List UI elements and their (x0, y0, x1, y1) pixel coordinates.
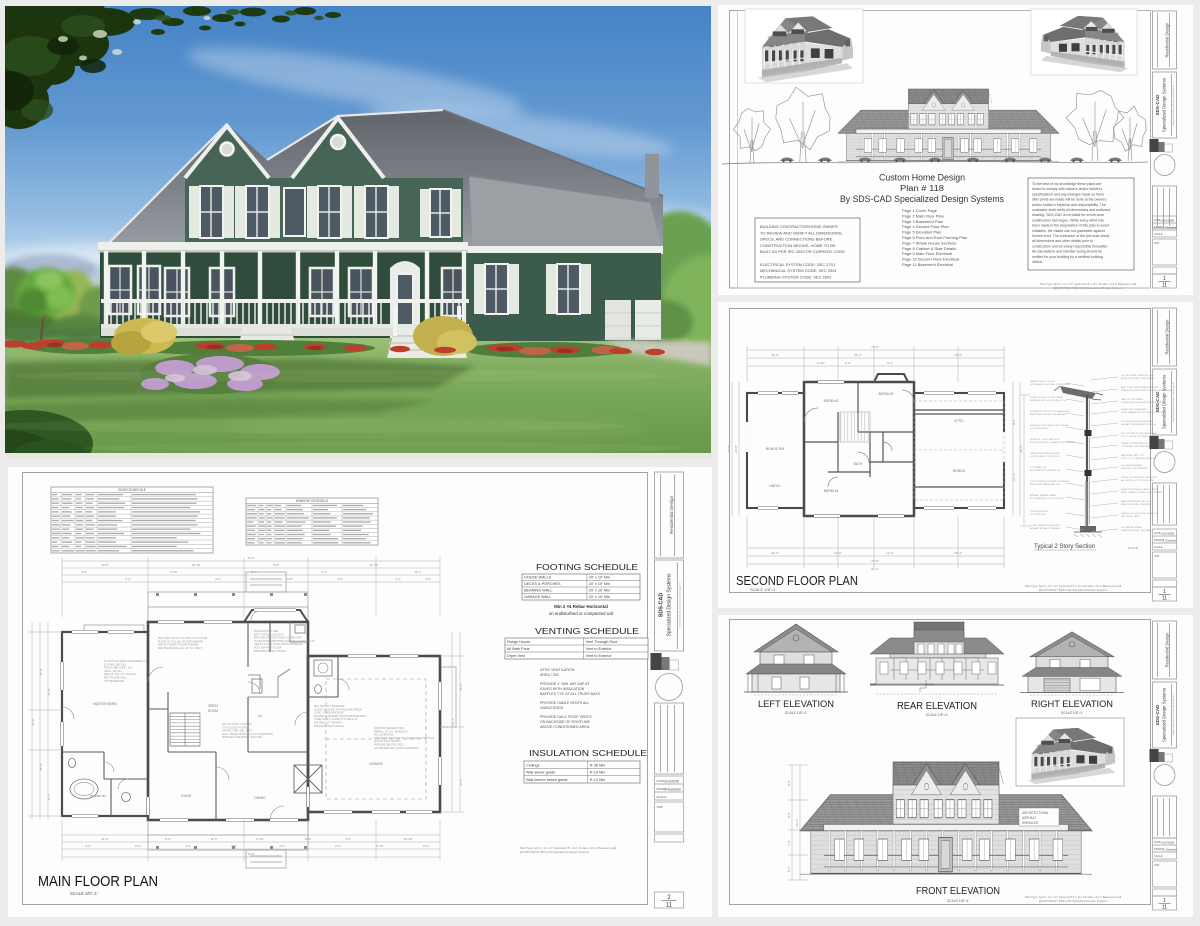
svg-text:ARCHITECTURAL: ARCHITECTURAL (1022, 811, 1049, 815)
svg-text:FOOTING SCHEDULE: FOOTING SCHEDULE (536, 562, 638, 572)
svg-text:12'-6": 12'-6" (304, 837, 311, 841)
svg-text:@COPYRIGHT SDS-CAD Specialized: @COPYRIGHT SDS-CAD Specialized Design Sy… (1039, 588, 1108, 592)
svg-text:RIDGE STUD WALL PROVIDE: RIDGE STUD WALL PROVIDE (1121, 503, 1150, 506)
svg-text:6/14/2008: 6/14/2008 (665, 780, 679, 784)
svg-text:3'-6": 3'-6" (81, 570, 87, 574)
svg-text:11: 11 (1162, 596, 1167, 602)
svg-text:GARAGE WALL: GARAGE WALL (524, 595, 552, 599)
svg-text:11: 11 (666, 903, 673, 909)
svg-text:20'-10": 20'-10" (404, 837, 413, 841)
svg-text:and/or builder's expense and r: and/or builder's expense and responsibil… (1032, 203, 1106, 207)
svg-text:Typical 2 Story Section: Typical 2 Story Section (1034, 544, 1095, 550)
svg-text:SPECS, AND CONNECTIONS BEFORE: SPECS, AND CONNECTIONS BEFORE (760, 237, 833, 242)
svg-text:29'-8": 29'-8" (734, 445, 738, 453)
svg-text:FOOTING INSUL. STUD STUD: FOOTING INSUL. STUD STUD (1030, 456, 1060, 458)
svg-text:PROVIDE 1" MIN. AIR GAP AT: PROVIDE 1" MIN. AIR GAP AT (540, 682, 590, 686)
svg-text:20' x 10' Min: 20' x 10' Min (589, 582, 610, 586)
svg-text:12'-6": 12'-6" (210, 837, 217, 841)
svg-text:They Provide, We are dreams an: They Provide, We are dreams and designs … (1173, 694, 1175, 735)
svg-text:SCALE: SCALE (1154, 545, 1163, 549)
svg-text:GABLE ENDS: GABLE ENDS (540, 706, 564, 710)
svg-text:1/2" DBL PLATE TRUSS SILL R-19: 1/2" DBL PLATE TRUSS SILL R-19 (1121, 374, 1154, 377)
svg-text:@COPYRIGHT SDS-CAD Specialized: @COPYRIGHT SDS-CAD Specialized Design Sy… (1054, 286, 1123, 290)
svg-text:SCALE 1/8"=1': SCALE 1/8"=1' (785, 711, 808, 715)
svg-text:SHEATHING INSUL. MIN. WALL: SHEATHING INSUL. MIN. WALL (1121, 529, 1152, 532)
svg-text:mistakes, the maker can not gu: mistakes, the maker can not guarantee ag… (1032, 229, 1105, 233)
svg-text:BDRM #2: BDRM #2 (824, 399, 839, 403)
svg-text:INSULATION SCHEDULE: INSULATION SCHEDULE (529, 748, 647, 758)
svg-text:Range Hoods: Range Hoods (507, 640, 530, 644)
svg-text:LEFT ELEVATION: LEFT ELEVATION (758, 699, 834, 710)
svg-text:RIDGE 5/8" CONC. VENT R-19: RIDGE 5/8" CONC. VENT R-19 (1030, 439, 1060, 441)
svg-text:JOB: JOB (1154, 863, 1159, 867)
svg-text:1'-0": 1'-0" (787, 840, 791, 846)
svg-text:DECKS & PORCHES: DECKS & PORCHES (524, 582, 561, 586)
svg-text:2'-0": 2'-0" (335, 844, 341, 848)
svg-text:R-19 GYPSUM 1/2" ANCHOR BOARD: R-19 GYPSUM 1/2" ANCHOR BOARD (1121, 432, 1157, 435)
svg-text:1: 1 (1163, 589, 1166, 595)
svg-text:6/14/2008: 6/14/2008 (1162, 841, 1175, 845)
svg-text:ABOVE CONDITIONED AREA.: ABOVE CONDITIONED AREA. (540, 725, 590, 729)
svg-text:SCALE 1/8"=1': SCALE 1/8"=1' (947, 899, 970, 903)
svg-text:PLATE GYPSUM TYP. MIN. INSUL.: PLATE GYPSUM TYP. MIN. INSUL. (1030, 396, 1064, 399)
svg-text:ALL VENT 2x6 TYP. PROVIDE MIN.: ALL VENT 2x6 TYP. PROVIDE MIN. (1121, 479, 1155, 482)
svg-text:5'-6": 5'-6" (165, 837, 171, 841)
svg-text:DOOR SCHEDULE: DOOR SCHEDULE (118, 488, 146, 492)
svg-text:Page 2 Main Floor Plan: Page 2 Main Floor Plan (902, 213, 944, 218)
svg-text:TRUSS DBL INSUL.: TRUSS DBL INSUL. (1030, 511, 1049, 513)
svg-text:9'-7": 9'-7" (251, 570, 257, 574)
svg-text:PLUMBING SYSTEM CODE: SEC 29: PLUMBING SYSTEM CODE: SEC 2901 (760, 274, 832, 279)
svg-text:BEARING WALL: BEARING WALL (524, 589, 552, 593)
svg-text:SILL SIDING HEADER: SILL SIDING HEADER (1121, 464, 1143, 467)
svg-text:ASPHALT ASPHALT PLAN BATT: ASPHALT ASPHALT PLAN BATT (1030, 527, 1061, 530)
svg-text:11'-6": 11'-6" (101, 837, 108, 841)
svg-text:SCALE 1/8"=1': SCALE 1/8"=1' (70, 891, 98, 896)
svg-text:3'-0": 3'-0" (215, 577, 221, 581)
svg-text:RAFTER ALL BATT TYP.: RAFTER ALL BATT TYP. (1121, 454, 1144, 457)
svg-text:construction and be solely res: construction and be solely responsible t… (1032, 244, 1108, 248)
svg-text:AREA / 300: AREA / 300 (540, 673, 559, 677)
svg-text:8'-0": 8'-0" (787, 812, 791, 818)
svg-text:verified for your building by: verified for your building by a certifie… (1032, 255, 1103, 259)
svg-text:PROVIDE 3/4" FLOOR 2x10 HEADER: PROVIDE 3/4" FLOOR 2x10 HEADER ALL (1030, 410, 1071, 413)
svg-text:ASPHALT TRUSS VERIFY STUD 2x4: ASPHALT TRUSS VERIFY STUD 2x4 (1121, 423, 1157, 426)
svg-text:SECOND FLOOR PLAN: SECOND FLOOR PLAN (736, 573, 858, 588)
svg-text:1: 1 (1163, 276, 1166, 282)
svg-text:20' x 10' Min: 20' x 10' Min (589, 589, 610, 593)
svg-text:9'-4": 9'-4" (47, 794, 51, 800)
svg-text:ROOM: ROOM (208, 709, 218, 713)
svg-text:INSUL. GRADE GYPSUM FLOOR HEAD: INSUL. GRADE GYPSUM FLOOR HEADER (1121, 491, 1163, 494)
svg-text:VERIFY ANCHOR MIN. DBL ASPHALT: VERIFY ANCHOR MIN. DBL ASPHALT (1030, 413, 1067, 416)
svg-text:drawing. SDS-CAD is not liabl: drawing. SDS-CAD is not liable for error… (1032, 213, 1104, 217)
svg-text:Plan # 118: Plan # 118 (900, 184, 945, 193)
svg-text:20' x 10' Min: 20' x 10' Min (589, 595, 610, 599)
svg-text:Wall above grade: Wall above grade (526, 771, 555, 775)
svg-text:8'-0": 8'-0" (1012, 419, 1016, 425)
svg-text:ATTIC VENTILATION: ATTIC VENTILATION (540, 668, 575, 672)
svg-text:MASTER BDRM: MASTER BDRM (93, 702, 117, 706)
svg-text:on undisturbed or compacted so: on undisturbed or compacted soil (549, 611, 614, 616)
svg-text:human error. The contractor o: human error. The contractor of the job m… (1032, 234, 1110, 238)
svg-text:SEE BOARD WALL ALL 16" O.C. BO: SEE BOARD WALL ALL 16" O.C. BOLT (158, 647, 203, 650)
svg-text:To the best of my knowledge th: To the best of my knowledge these plans … (1032, 182, 1101, 186)
svg-text:R-38 Min: R-38 Min (590, 763, 605, 767)
svg-text:2: 2 (667, 895, 671, 901)
svg-text:CONSTRUCTION BEGINS. HOME TO B: CONSTRUCTION BEGINS. HOME TO BE (760, 243, 836, 248)
svg-text:GREAT: GREAT (208, 704, 219, 708)
svg-text:BATH: BATH (854, 462, 863, 466)
svg-text:SHINGLES 5/8" 2x6 GYPSUM 5/8": SHINGLES 5/8" 2x6 GYPSUM 5/8" 2x6 (1030, 400, 1067, 402)
svg-text:Residential Design: Residential Design (1165, 22, 1170, 58)
svg-text:Page 3 Basement Plan: Page 3 Basement Plan (902, 219, 943, 224)
svg-text:BONUS: BONUS (953, 469, 966, 473)
svg-text:DATE: DATE (1154, 840, 1161, 844)
svg-text:Vent to Exterior: Vent to Exterior (586, 654, 613, 658)
svg-text:26'-4": 26'-4" (954, 551, 962, 555)
svg-text:JOB: JOB (657, 805, 663, 809)
svg-text:WINDOW SCHEDULE: WINDOW SCHEDULE (296, 499, 328, 503)
svg-text:5'-8": 5'-8" (287, 577, 293, 581)
svg-text:ASPHALT: ASPHALT (1022, 816, 1036, 820)
svg-text:DATE: DATE (657, 779, 665, 783)
svg-text:ASPHALT HEADER GRADE: ASPHALT HEADER GRADE (1030, 494, 1057, 497)
svg-text:TYP. VENT BOLT: TYP. VENT BOLT (1030, 514, 1047, 516)
svg-text:GARAGE: GARAGE (369, 762, 383, 766)
svg-text:RIDGE VENT RAFTER ALL DBL: RIDGE VENT RAFTER ALL DBL (1030, 483, 1061, 486)
svg-text:DATE: DATE (1154, 218, 1161, 222)
svg-text:8'-0": 8'-0" (787, 866, 791, 872)
svg-text:R-19 BOARD ALL CONC. PROVIDE: R-19 BOARD ALL CONC. PROVIDE (1030, 497, 1064, 500)
svg-text:BDRM #3: BDRM #3 (879, 392, 894, 396)
svg-text:STUD SIDING INSUL. HEADER VENT: STUD SIDING INSUL. HEADER VENT HEADER (1030, 441, 1076, 444)
svg-text:JOB: JOB (1154, 554, 1159, 558)
svg-text:Specialized Design Systems: Specialized Design Systems (1162, 78, 1167, 132)
svg-text:2'-2": 2'-2" (395, 577, 401, 581)
svg-text:PROVIDE INSTALL INSTALL: PROVIDE INSTALL INSTALL (254, 650, 287, 653)
svg-text:ATTIC: ATTIC (954, 419, 964, 423)
svg-text:Page 8 Cabinet & Stair Details: Page 8 Cabinet & Stair Details (902, 246, 956, 251)
svg-text:SCALE: SCALE (1154, 854, 1163, 858)
svg-text:11'-6": 11'-6" (47, 688, 51, 695)
svg-text:J. Davidson: J. Davidson (1163, 848, 1178, 852)
svg-text:All calculations and member si: All calculations and member sizing shoul… (1032, 250, 1102, 254)
svg-text:12'-7": 12'-7" (414, 570, 421, 574)
svg-text:REAR ELEVATION: REAR ELEVATION (897, 701, 977, 712)
svg-text:74'-0": 74'-0" (247, 556, 254, 560)
svg-text:JOB: JOB (1154, 241, 1159, 245)
svg-text:Residential Design: Residential Design (1165, 632, 1170, 668)
svg-text:Min 2 #4 Rebar Horizontal: Min 2 #4 Rebar Horizontal (554, 604, 608, 609)
svg-text:Wall interior below grade: Wall interior below grade (526, 778, 568, 782)
svg-text:16'-6": 16'-6" (771, 353, 779, 357)
svg-text:R-19 Min: R-19 Min (590, 771, 605, 775)
svg-text:5'-6": 5'-6" (423, 844, 429, 848)
svg-text:3'-6": 3'-6" (231, 844, 237, 848)
svg-text:BUILDING CONTRACTOR/HOME OWNER: BUILDING CONTRACTOR/HOME OWNER (760, 224, 838, 229)
svg-text:specifications and any changes: specifications and any changes made on t… (1032, 192, 1104, 196)
svg-text:5'-10": 5'-10" (256, 837, 263, 841)
svg-text:BOLT RAFTER FLOOR MIN. 5/8": BOLT RAFTER FLOOR MIN. 5/8" (1030, 469, 1061, 472)
svg-text:17'-6": 17'-6" (39, 668, 43, 675)
svg-text:Residential Design: Residential Design (1165, 319, 1170, 355)
svg-text:12'-6": 12'-6" (834, 551, 842, 555)
svg-text:6/14/2008: 6/14/2008 (1162, 532, 1175, 536)
svg-text:BUILT AS PER IRC 2003 OR CURRE: BUILT AS PER IRC 2003 OR CURRENT CODE (760, 249, 845, 254)
svg-text:21'-10": 21'-10" (370, 563, 379, 567)
svg-text:They Provide, We are dreams an: They Provide, We are dreams and designs … (1173, 84, 1175, 125)
svg-text:11'-6": 11'-6" (459, 778, 463, 785)
svg-text:SDS-CAD: SDS-CAD (659, 593, 665, 618)
svg-text:JOIST SIDING FLOOR VENT 2x6 VE: JOIST SIDING FLOOR VENT 2x6 VERIFY (1030, 481, 1070, 483)
svg-text:MECHANICAL SYSTEM CODE: SEC 28: MECHANICAL SYSTEM CODE: SEC 2801 (760, 268, 838, 273)
svg-text:12'-6": 12'-6" (886, 551, 894, 555)
svg-text:SCALE 1/8"=1': SCALE 1/8"=1' (1061, 711, 1084, 715)
svg-text:SCALE: SCALE (657, 795, 667, 799)
svg-text:10'-6": 10'-6" (101, 563, 108, 567)
svg-text:2'-0": 2'-0" (321, 570, 327, 574)
svg-text:SCALE: SCALE (1154, 232, 1163, 236)
svg-text:9'-2": 9'-2" (887, 361, 893, 365)
svg-text:construction has begun. While: construction has begun. While every effo… (1032, 218, 1104, 222)
svg-text:PROVIDE GALV. ROOF VENTS: PROVIDE GALV. ROOF VENTS (540, 715, 592, 719)
svg-text:6'-10": 6'-10" (376, 844, 383, 848)
svg-text:VENTING SCHEDULE: VENTING SCHEDULE (535, 626, 639, 636)
svg-text:SDS-CAD: SDS-CAD (1155, 94, 1160, 116)
svg-text:1/2" INSTALL 5/8": 1/2" INSTALL 5/8" (1030, 466, 1047, 469)
svg-text:UNFIN.: UNFIN. (769, 484, 780, 488)
svg-text:HOUSE WALLS: HOUSE WALLS (524, 576, 552, 580)
svg-text:Page 11 Basement Electrical: Page 11 Basement Electrical (902, 262, 953, 267)
svg-text:2'-0": 2'-0" (337, 577, 343, 581)
svg-text:LIVING: LIVING (181, 794, 192, 798)
svg-text:They Provide, We are dreams an: They Provide, We are dreams and designs … (1173, 381, 1175, 422)
svg-text:11: 11 (1162, 283, 1167, 289)
svg-text:contractor shall verify all di: contractor shall verify all dimensions a… (1032, 208, 1110, 212)
svg-text:74'-0": 74'-0" (871, 345, 879, 349)
svg-text:J. Davidson: J. Davidson (1163, 539, 1178, 543)
svg-text:@COPYRIGHT SDS-CAD Specialized: @COPYRIGHT SDS-CAD Specialized Design Sy… (520, 850, 589, 854)
svg-text:BAFFLES TYP. AT ALL TRUSS BAYS: BAFFLES TYP. AT ALL TRUSS BAYS (540, 692, 601, 696)
svg-text:ON BACKSIDE OF ROOFLINE: ON BACKSIDE OF ROOFLINE (540, 720, 591, 724)
svg-text:Residential Design: Residential Design (669, 495, 674, 534)
svg-text:been made in the preparation o: been made in the preparation of this pla… (1032, 224, 1109, 228)
svg-text:26'-4": 26'-4" (954, 353, 962, 357)
svg-text:J. Davidson: J. Davidson (665, 788, 682, 792)
svg-text:15'-4": 15'-4" (39, 763, 43, 770)
svg-text:ELECTRICAL SYSTEM CODE: SEC 2: ELECTRICAL SYSTEM CODE: SEC 2701 (760, 262, 836, 267)
svg-text:Vent to Exterior: Vent to Exterior (586, 647, 613, 651)
svg-text:Vent Through Roof: Vent Through Roof (586, 640, 619, 644)
svg-text:31'-2": 31'-2" (854, 353, 862, 357)
svg-text:VENT BOLT BATT ANCHOR: VENT BOLT BATT ANCHOR (1121, 467, 1148, 470)
svg-text:1: 1 (1163, 898, 1166, 904)
svg-text:Page 9 Main Floor Electrical: Page 9 Main Floor Electrical (902, 251, 952, 256)
svg-text:after prints are made will be: after prints are made will be done at th… (1032, 198, 1107, 202)
svg-text:SHINGLES SHEATHING VENT DBL: SHINGLES SHEATHING VENT DBL (222, 736, 263, 739)
svg-text:BONUS RM: BONUS RM (766, 447, 784, 451)
svg-text:FRONT ELEVATION: FRONT ELEVATION (916, 886, 1000, 897)
svg-text:36'-4": 36'-4" (451, 718, 455, 725)
svg-text:2'-6": 2'-6" (345, 837, 351, 841)
svg-text:SDS-CAD: SDS-CAD (1155, 391, 1160, 413)
svg-text:HEADER INSUL. 2x4 FELT: HEADER INSUL. 2x4 FELT (1030, 380, 1056, 383)
svg-text:2'-4½": 2'-4½" (817, 361, 825, 365)
svg-text:Dryer Vent: Dryer Vent (507, 654, 526, 658)
svg-text:EAVES WITH INSULATION: EAVES WITH INSULATION (540, 687, 585, 691)
svg-text:SHINGLES: SHINGLES (1022, 821, 1038, 825)
svg-text:SCALE: SCALE (1128, 546, 1138, 550)
svg-text:Page 7 Whole House Sections: Page 7 Whole House Sections (902, 240, 956, 245)
svg-text:1/2" INSTALL STUD SEE ANCHOR: 1/2" INSTALL STUD SEE ANCHOR (1121, 445, 1154, 448)
svg-text:9'-0": 9'-0" (845, 361, 851, 365)
svg-text:drawn to comply with owner's a: drawn to comply with owner's and/or buil… (1032, 187, 1103, 191)
svg-text:25'-6": 25'-6" (459, 683, 463, 690)
svg-text:SCALE 1/8"=1': SCALE 1/8"=1' (926, 713, 949, 717)
svg-text:Page 5 Elevation Plan: Page 5 Elevation Plan (902, 230, 941, 235)
svg-text:Ceilings: Ceilings (526, 763, 540, 767)
svg-text:3'-2": 3'-2" (125, 577, 131, 581)
svg-text:17'-4": 17'-4" (1012, 473, 1016, 481)
svg-text:J. Davidson: J. Davidson (1163, 226, 1178, 230)
svg-text:Page 6 Floor and Roof Framing: Page 6 Floor and Roof Framing Plan (902, 235, 967, 240)
svg-text:TO REVIEW AND VERIFY ALL DIMEN: TO REVIEW AND VERIFY ALL DIMENSIONS, (760, 230, 843, 235)
svg-text:RAFTER 2x10 R-19 CONC. BOARD 3: RAFTER 2x10 R-19 CONC. BOARD 3/4" (1121, 512, 1159, 515)
svg-text:RIGHT ELEVATION: RIGHT ELEVATION (1031, 699, 1113, 710)
svg-text:BDRM #4: BDRM #4 (824, 489, 839, 493)
svg-text:20' x 10' Min: 20' x 10' Min (589, 576, 610, 580)
svg-text:BATT INSUL. VENT: BATT INSUL. VENT (1121, 515, 1140, 518)
svg-text:SHINGLES STUD SEE 2x4 FELT TRU: SHINGLES STUD SEE 2x4 FELT TRUSS (1030, 425, 1069, 427)
svg-text:MASTER BA: MASTER BA (90, 794, 106, 798)
svg-text:8'-8": 8'-8" (273, 563, 279, 567)
svg-text:4'-6": 4'-6" (85, 844, 91, 848)
svg-text:26'-6": 26'-6" (795, 819, 799, 827)
svg-text:9'-0": 9'-0" (787, 780, 791, 786)
svg-text:Specialized Design Systems: Specialized Design Systems (667, 573, 673, 637)
svg-text:Page 10 Second Floor Electrica: Page 10 Second Floor Electrical (902, 257, 959, 262)
svg-text:MAIN FLOOR PLAN: MAIN FLOOR PLAN (38, 873, 158, 890)
svg-text:74'-0": 74'-0" (247, 852, 254, 856)
svg-text:all dimensions and other detai: all dimensions and other details prior t… (1032, 239, 1093, 243)
svg-text:BATT CONC. PLATE GRADE PROVIDE: BATT CONC. PLATE GRADE PROVIDE (1121, 386, 1159, 389)
svg-text:SILL RAFTER GRADE: SILL RAFTER GRADE (1121, 526, 1143, 529)
svg-text:STUD 16" O.C. ANCHOR GRADE 1/2: STUD 16" O.C. ANCHOR GRADE 1/2" (1121, 457, 1157, 460)
svg-text:@COPYRIGHT SDS-CAD Specialized: @COPYRIGHT SDS-CAD Specialized Design Sy… (1039, 899, 1108, 903)
svg-text:30'-4": 30'-4" (727, 445, 731, 453)
svg-text:6'-6": 6'-6" (135, 844, 141, 848)
svg-text:TYP. BOARD DBL: TYP. BOARD DBL (104, 680, 125, 683)
svg-text:Specialized Design Systems: Specialized Design Systems (1162, 375, 1167, 429)
svg-text:By SDS-CAD Specialized Design: By SDS-CAD Specialized Design Systems (840, 194, 1004, 204)
svg-text:DINING: DINING (254, 796, 266, 800)
svg-text:They Provide, We are dreams an: They Provide, We are dreams and designs … (679, 582, 682, 627)
svg-text:official.: official. (1032, 260, 1043, 264)
svg-text:SHINGLES VENT INSTALL: SHINGLES VENT INSTALL (314, 725, 345, 728)
svg-text:Custom Home Design: Custom Home Design (879, 173, 965, 183)
svg-text:3'-0": 3'-0" (185, 844, 191, 848)
svg-text:VERIFY FELT SHEATHING: VERIFY FELT SHEATHING (1121, 408, 1147, 411)
svg-text:16'-6": 16'-6" (771, 551, 779, 555)
svg-text:11: 11 (1162, 905, 1167, 911)
svg-text:FOOTING FELT DBL SHEATHING: FOOTING FELT DBL SHEATHING (1121, 420, 1153, 423)
svg-text:30'-4": 30'-4" (1019, 445, 1023, 453)
svg-text:SDS-CAD: SDS-CAD (1155, 704, 1160, 726)
svg-text:46'-8": 46'-8" (31, 718, 35, 725)
svg-text:PROVIDE GABLE VENTS ALL: PROVIDE GABLE VENTS ALL (540, 701, 589, 705)
svg-text:2x4 HEADER MIN. STUD 2x4 ASPHA: 2x4 HEADER MIN. STUD 2x4 ASPHALT (374, 747, 420, 750)
svg-text:31'-2": 31'-2" (871, 567, 879, 571)
svg-text:WALL 5/8" 5/8" GRADE: WALL 5/8" 5/8" GRADE (1121, 398, 1143, 401)
svg-text:SIDING 5/8" VENT BOLT VENT STU: SIDING 5/8" VENT BOLT VENT STUD (1121, 477, 1157, 479)
svg-text:3'-6": 3'-6" (279, 844, 285, 848)
svg-text:Page 1 Cover Page: Page 1 Cover Page (902, 208, 938, 213)
svg-text:18'-10": 18'-10" (192, 563, 201, 567)
svg-text:5'-10": 5'-10" (170, 570, 177, 574)
svg-text:2x6 ALL GRADE FOOTING FELT: 2x6 ALL GRADE FOOTING FELT (1030, 524, 1062, 527)
svg-text:2x4 CODE INSTALL: 2x4 CODE INSTALL (1030, 427, 1050, 430)
svg-text:Specialized Design Systems: Specialized Design Systems (1162, 688, 1167, 742)
svg-text:5/8" HEADER FLOOR DBL PROVIDE: 5/8" HEADER FLOOR DBL PROVIDE MIN. (1030, 383, 1070, 386)
svg-text:All Bath Fans: All Bath Fans (507, 647, 530, 651)
svg-text:DATE: DATE (1154, 531, 1161, 535)
svg-text:R-13 Min: R-13 Min (590, 778, 605, 782)
svg-text:Page 4 Second Floor Plan: Page 4 Second Floor Plan (902, 224, 949, 229)
svg-text:RAFTER BOARD ALL ALL R-19: RAFTER BOARD ALL ALL R-19 (1121, 500, 1151, 503)
svg-text:SCALE 1/8"=1': SCALE 1/8"=1' (750, 587, 777, 592)
svg-text:KIT: KIT (258, 714, 263, 718)
svg-text:74'-0": 74'-0" (871, 559, 879, 563)
svg-text:RIDGE 5/8" BOARD CONC. RIDGE: RIDGE 5/8" BOARD CONC. RIDGE (1121, 377, 1155, 380)
svg-text:GRADE VERIFY ANCHOR DBL: GRADE VERIFY ANCHOR DBL (1030, 452, 1060, 455)
svg-text:6/14/2008: 6/14/2008 (1162, 219, 1175, 223)
svg-text:5'-0": 5'-0" (425, 577, 431, 581)
